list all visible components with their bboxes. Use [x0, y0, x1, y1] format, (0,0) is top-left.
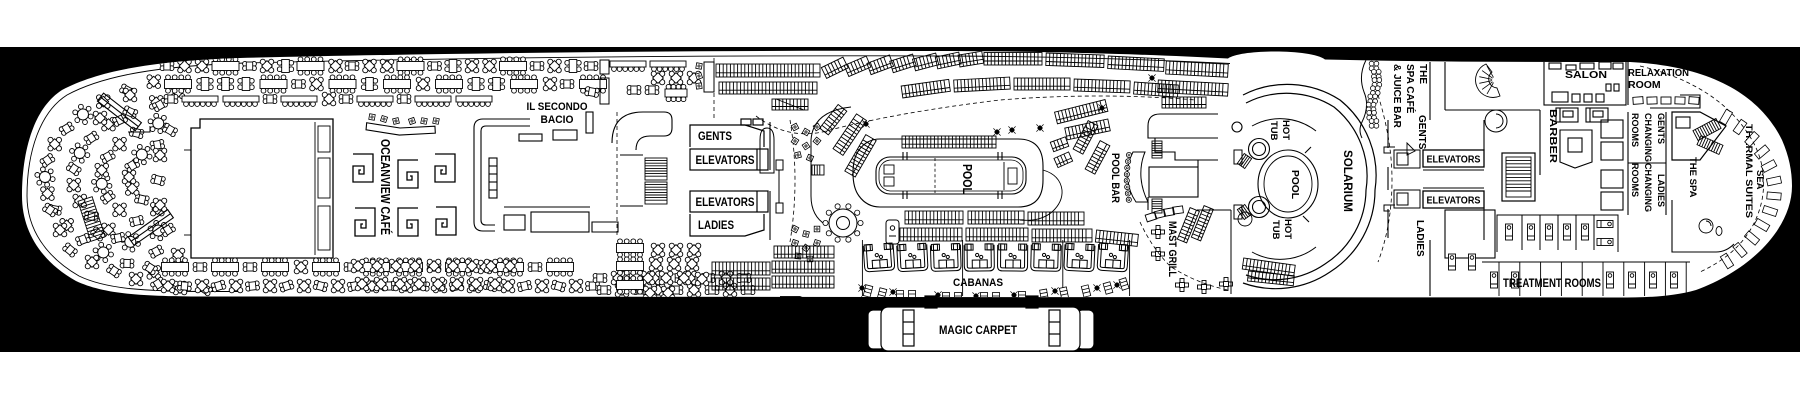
svg-text:GENTS: GENTS [1416, 115, 1427, 150]
svg-text:MAST GRILL: MAST GRILL [1166, 221, 1178, 277]
svg-text:ROOMS: ROOMS [1630, 113, 1640, 147]
svg-text:CHANGING: CHANGING [1643, 113, 1653, 162]
svg-text:CHANGING: CHANGING [1643, 163, 1653, 212]
svg-text:SEA: SEA [1754, 170, 1765, 190]
svg-text:SOLARIUM: SOLARIUM [1341, 150, 1353, 212]
svg-text:LADIES: LADIES [1656, 174, 1666, 207]
svg-text:IL SECONDO: IL SECONDO [527, 101, 588, 113]
svg-text:TUB: TUB [1270, 220, 1281, 240]
svg-text:POOL: POOL [960, 164, 975, 194]
svg-text:HOT: HOT [1280, 120, 1291, 140]
svg-text:LADIES: LADIES [698, 218, 734, 232]
svg-text:ELEVATORS: ELEVATORS [1427, 154, 1481, 166]
svg-text:GENTS: GENTS [1656, 113, 1666, 144]
svg-text:POOL BAR: POOL BAR [1109, 153, 1121, 203]
svg-text:& JUICE BAR: & JUICE BAR [1391, 64, 1402, 129]
svg-text:BACIO: BACIO [541, 114, 574, 126]
svg-text:CABANAS: CABANAS [953, 277, 1003, 289]
svg-text:ELEVATORS: ELEVATORS [696, 153, 755, 167]
svg-text:RELAXATION: RELAXATION [1628, 67, 1689, 79]
svg-text:ELEVATORS: ELEVATORS [1427, 195, 1481, 207]
svg-text:HOT: HOT [1282, 219, 1293, 239]
svg-text:SPA CAFÉ: SPA CAFÉ [1404, 64, 1417, 114]
svg-text:LADIES: LADIES [1414, 220, 1425, 257]
svg-text:ROOMS: ROOMS [1630, 163, 1640, 197]
svg-text:BARBER: BARBER [1547, 109, 1558, 164]
svg-text:ROOM: ROOM [1628, 79, 1661, 91]
svg-text:THE SPA: THE SPA [1687, 157, 1698, 198]
svg-text:POOL: POOL [1289, 170, 1300, 199]
svg-text:THE: THE [1417, 64, 1428, 84]
svg-text:GENTS: GENTS [698, 129, 732, 143]
svg-text:ELEVATORS: ELEVATORS [696, 195, 755, 209]
svg-text:TUB: TUB [1268, 121, 1279, 141]
svg-text:MAGIC CARPET: MAGIC CARPET [939, 325, 1017, 337]
svg-text:OCEANVIEW CAFÉ: OCEANVIEW CAFÉ [378, 139, 393, 235]
svg-text:TREATMENT ROOMS: TREATMENT ROOMS [1503, 278, 1601, 290]
svg-text:SALON: SALON [1565, 69, 1607, 81]
